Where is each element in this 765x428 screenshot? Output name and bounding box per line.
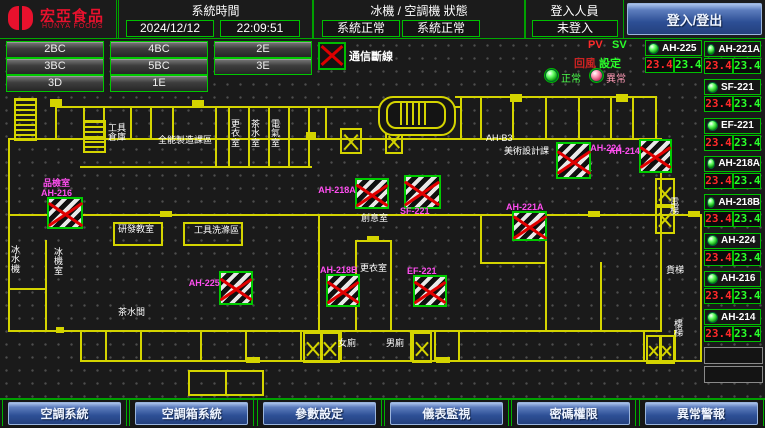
marker-unit-label: AH-225: [189, 279, 220, 289]
normal-label: 正常: [561, 70, 581, 85]
room-label: 更衣室: [360, 264, 387, 273]
door-mark: [306, 132, 316, 139]
nav-button-3[interactable]: 參數設定: [263, 402, 376, 425]
zone-button-3d[interactable]: 3D: [6, 75, 104, 92]
wall-segment: [45, 240, 47, 332]
unit-status-led-icon: [707, 44, 715, 55]
unit-status-led-icon: [707, 158, 715, 169]
door-mark: [436, 357, 450, 363]
unit-button-ah-224[interactable]: AH-224: [704, 233, 761, 249]
room-label: 冰 機 室: [54, 248, 63, 276]
comm-loss-marker[interactable]: EF-221: [413, 275, 447, 307]
stairs-icon: [83, 120, 106, 153]
room-label: 女廁: [338, 339, 356, 348]
unit-name: AH-225: [662, 43, 696, 54]
comm-loss-marker[interactable]: AH-218A: [355, 178, 389, 209]
unit-button-ah-214[interactable]: AH-214: [704, 309, 761, 325]
unit-button-ah-216[interactable]: AH-216: [704, 271, 761, 287]
wall-segment: [80, 360, 702, 362]
unit-status-led-icon: [707, 197, 715, 208]
unit-pv-value: 23.4: [704, 173, 733, 189]
zone-button-2bc[interactable]: 2BC: [6, 41, 104, 58]
nav-button-4[interactable]: 儀表監視: [390, 402, 503, 425]
setpoint-col-label: 設定: [599, 55, 621, 71]
tank-icon: [378, 96, 456, 136]
unit-status-led-icon: [707, 273, 718, 284]
door-mark: [588, 211, 600, 217]
comm-loss-label: 通信斷線: [349, 48, 393, 64]
wall-segment: [610, 96, 612, 140]
door-mark: [510, 94, 522, 102]
unit-button-ah-218b[interactable]: AH-218B: [704, 194, 761, 210]
wall-segment: [105, 330, 107, 362]
room-label: 全能製造課區: [158, 136, 212, 145]
room-label: 工具洗滌區: [194, 226, 239, 235]
wall-segment: [480, 96, 482, 140]
room-label: 更 衣 室: [231, 120, 240, 148]
wall-segment: [188, 370, 190, 394]
wall-segment: [288, 106, 290, 168]
wall-segment: [300, 330, 302, 362]
shaft-x-icon: [659, 335, 675, 364]
wall-segment: [225, 370, 227, 394]
unit-pv-value: 23.4: [704, 96, 733, 112]
room-label: 研發教室: [118, 225, 154, 234]
wall-segment: [183, 244, 243, 246]
sidebar-empty-slot: [704, 366, 763, 383]
comm-loss-marker[interactable]: 品檢室 AH-216: [47, 197, 83, 229]
marker-unit-label: 品檢室 AH-216: [41, 179, 72, 199]
unit-status-led-icon: [707, 120, 718, 131]
wall-segment: [480, 214, 482, 264]
normal-led-icon: [545, 69, 558, 82]
wall-segment: [215, 106, 217, 168]
room-label: 男廁: [386, 339, 404, 348]
logo-subtitle: HUNYA FOODS: [42, 23, 103, 30]
unit-button-ah-221a[interactable]: AH-221A: [704, 41, 761, 57]
wall-segment: [150, 106, 152, 140]
wall-segment: [248, 106, 250, 168]
wall-segment: [183, 222, 185, 246]
wall-segment: [600, 262, 602, 332]
comm-loss-marker[interactable]: AH-221A: [512, 211, 547, 241]
room-label: 工具 倉庫: [108, 124, 126, 143]
unit-name: EF-221: [721, 120, 754, 131]
marker-unit-label: AH-221A: [506, 203, 544, 213]
abnormal-led-icon: [590, 69, 603, 82]
door-mark: [616, 94, 628, 102]
system-time-value: 22:09:51: [220, 20, 300, 37]
unit-sv-value: 23.4: [733, 96, 761, 112]
wall-segment: [8, 288, 47, 290]
logo: 宏亞食品 HUNYA FOODS: [2, 0, 117, 38]
door-mark: [160, 211, 172, 217]
marker-unit-label: AH-218A: [318, 186, 356, 196]
abnormal-label: 異常: [606, 70, 626, 85]
unit-pv-value: 23.4: [704, 211, 733, 227]
wall-segment: [241, 222, 243, 246]
wall-segment: [578, 96, 580, 140]
comm-loss-marker[interactable]: AH-225: [219, 271, 253, 305]
room-label: 美術設計課: [504, 147, 549, 156]
unit-pv-value: 23.4: [704, 326, 733, 342]
unit-status-led-icon: [707, 82, 718, 93]
nav-button-5[interactable]: 密碼權限: [517, 402, 630, 425]
wall-segment: [655, 96, 657, 140]
header-bar: 宏亞食品 HUNYA FOODS 系統時間 2024/12/12 22:09:5…: [0, 0, 765, 39]
login-label: 登入人員: [526, 2, 623, 19]
unit-button-sf-221[interactable]: SF-221: [704, 79, 761, 95]
wall-segment: [130, 106, 132, 140]
door-mark: [246, 357, 260, 363]
unit-name: AH-218A: [718, 158, 760, 169]
unit-button-ah-225[interactable]: AH-225: [645, 40, 702, 56]
pv-label: PV: [588, 39, 603, 51]
system-date-value: 2024/12/12: [126, 20, 214, 37]
unit-sv-value: 23.4: [733, 135, 761, 151]
system-time-label: 系統時間: [119, 2, 312, 19]
return-air-col-label: 回風: [574, 55, 596, 71]
door-mark: [192, 100, 204, 107]
room-label: 創意室: [361, 214, 388, 223]
unit-sv-value: 23.4: [733, 288, 761, 304]
door-mark: [50, 99, 62, 107]
comm-loss-marker[interactable]: SF-221: [404, 175, 441, 209]
unit-pv-value: 23.4: [645, 57, 674, 73]
nav-cell: 異常警報: [639, 400, 764, 426]
room-label: 茶 水 室: [251, 120, 260, 148]
wall-segment: [228, 106, 230, 168]
nav-cell: 空調箱系統: [129, 400, 254, 426]
nav-cell: 參數設定: [257, 400, 382, 426]
comm-loss-marker[interactable]: AH-224: [556, 142, 591, 179]
wall-segment: [55, 106, 57, 140]
wall-segment: [140, 330, 142, 362]
unit-status-led-icon: [648, 43, 659, 54]
wall-segment: [113, 222, 115, 246]
unit-name: AH-214: [721, 312, 755, 323]
stairs-icon: [14, 98, 37, 141]
unit-sv-value: 23.4: [733, 58, 761, 74]
door-mark: [367, 236, 379, 242]
unit-sv-value: 23.4: [733, 173, 761, 189]
unit-name: SF-221: [721, 82, 754, 93]
wall-segment: [458, 330, 460, 362]
wall-segment: [8, 138, 10, 332]
zone-button-4bc[interactable]: 4BC: [110, 41, 208, 58]
wall-segment: [188, 394, 264, 396]
nav-button-6[interactable]: 異常警報: [645, 402, 758, 425]
unit-pv-value: 23.4: [704, 250, 733, 266]
room-label: 電 梯: [670, 198, 679, 217]
nav-button-2[interactable]: 空調箱系統: [135, 402, 248, 425]
unit-name: AH-218B: [718, 197, 760, 208]
wall-segment: [643, 330, 645, 362]
unit-button-ah-218a[interactable]: AH-218A: [704, 156, 761, 172]
nav-button-1[interactable]: 空調系統: [8, 402, 121, 425]
unit-name: AH-216: [721, 273, 755, 284]
machine-status-label: 冰機 / 空調機 狀態: [314, 2, 524, 19]
unit-pv-value: 23.4: [704, 58, 733, 74]
unit-button-ef-221[interactable]: EF-221: [704, 118, 761, 134]
zone-button-1e[interactable]: 1E: [110, 75, 208, 92]
chiller-status-value: 系統正常: [322, 20, 400, 37]
wall-segment: [200, 330, 202, 362]
room-label: 茶水間: [118, 308, 145, 317]
wall-segment: [700, 214, 702, 362]
unit-sv-value: 23.4: [733, 326, 761, 342]
unit-sv-value: 23.4: [733, 211, 761, 227]
door-mark: [688, 211, 700, 217]
wall-segment: [80, 166, 312, 168]
wall-segment: [183, 222, 243, 224]
unit-status-led-icon: [707, 312, 718, 323]
wall-segment: [268, 106, 270, 168]
ahu-status-value: 系統正常: [402, 20, 480, 37]
shaft-x-icon: [412, 332, 432, 363]
shaft-x-icon: [320, 332, 340, 363]
room-label: 電 氣 室: [271, 120, 280, 148]
room-label: AH-B3: [486, 134, 513, 143]
comm-loss-marker[interactable]: AH-218B: [326, 274, 360, 307]
room-label: 冰 水 機: [11, 246, 20, 274]
login-logout-button[interactable]: 登入/登出: [627, 3, 762, 35]
nav-cell: 儀表監視: [384, 400, 509, 426]
wall-segment: [480, 262, 547, 264]
nav-cell: 密碼權限: [511, 400, 636, 426]
unit-name: AH-224: [721, 235, 755, 246]
bottom-nav-bar: 空調系統空調箱系統參數設定儀表監視密碼權限異常警報: [0, 398, 765, 428]
sidebar-empty-slot: [704, 347, 763, 364]
wall-segment: [460, 96, 462, 140]
room-label: 貨梯: [666, 266, 684, 275]
unit-pv-value: 23.4: [704, 135, 733, 151]
room-label: 樓 梯: [674, 320, 683, 339]
comm-loss-marker[interactable]: AH-214: [639, 139, 672, 173]
login-status-value: 未登入: [532, 20, 618, 37]
nav-cell: 空調系統: [2, 400, 127, 426]
unit-sv-value: 23.4: [733, 250, 761, 266]
comm-loss-icon: [318, 42, 346, 70]
wall-segment: [545, 96, 547, 140]
wall-segment: [355, 330, 392, 332]
wall-segment: [113, 244, 163, 246]
unit-pv-value: 23.4: [704, 288, 733, 304]
wall-segment: [325, 106, 327, 140]
marker-unit-label: AH-218B: [320, 266, 358, 276]
door-mark: [56, 327, 64, 333]
marker-unit-label: EF-221: [407, 267, 437, 277]
marker-unit-label: SF-221: [400, 207, 430, 217]
wall-segment: [390, 240, 392, 332]
zone-button-2e[interactable]: 2E: [214, 41, 312, 58]
unit-status-led-icon: [707, 235, 718, 246]
unit-sv-value: 23.4: [674, 57, 702, 73]
zone-button-3e[interactable]: 3E: [214, 58, 312, 75]
wall-segment: [632, 96, 634, 140]
wall-segment: [262, 370, 264, 394]
wall-segment: [8, 138, 662, 140]
shaft-x-icon: [340, 128, 362, 154]
zone-button-5bc[interactable]: 5BC: [110, 58, 208, 75]
wall-segment: [80, 330, 82, 362]
wall-segment: [161, 222, 163, 246]
unit-name: AH-221A: [718, 44, 760, 55]
sv-label: SV: [612, 39, 627, 51]
marker-unit-label: AH-214: [609, 147, 640, 157]
zone-button-3bc[interactable]: 3BC: [6, 58, 104, 75]
